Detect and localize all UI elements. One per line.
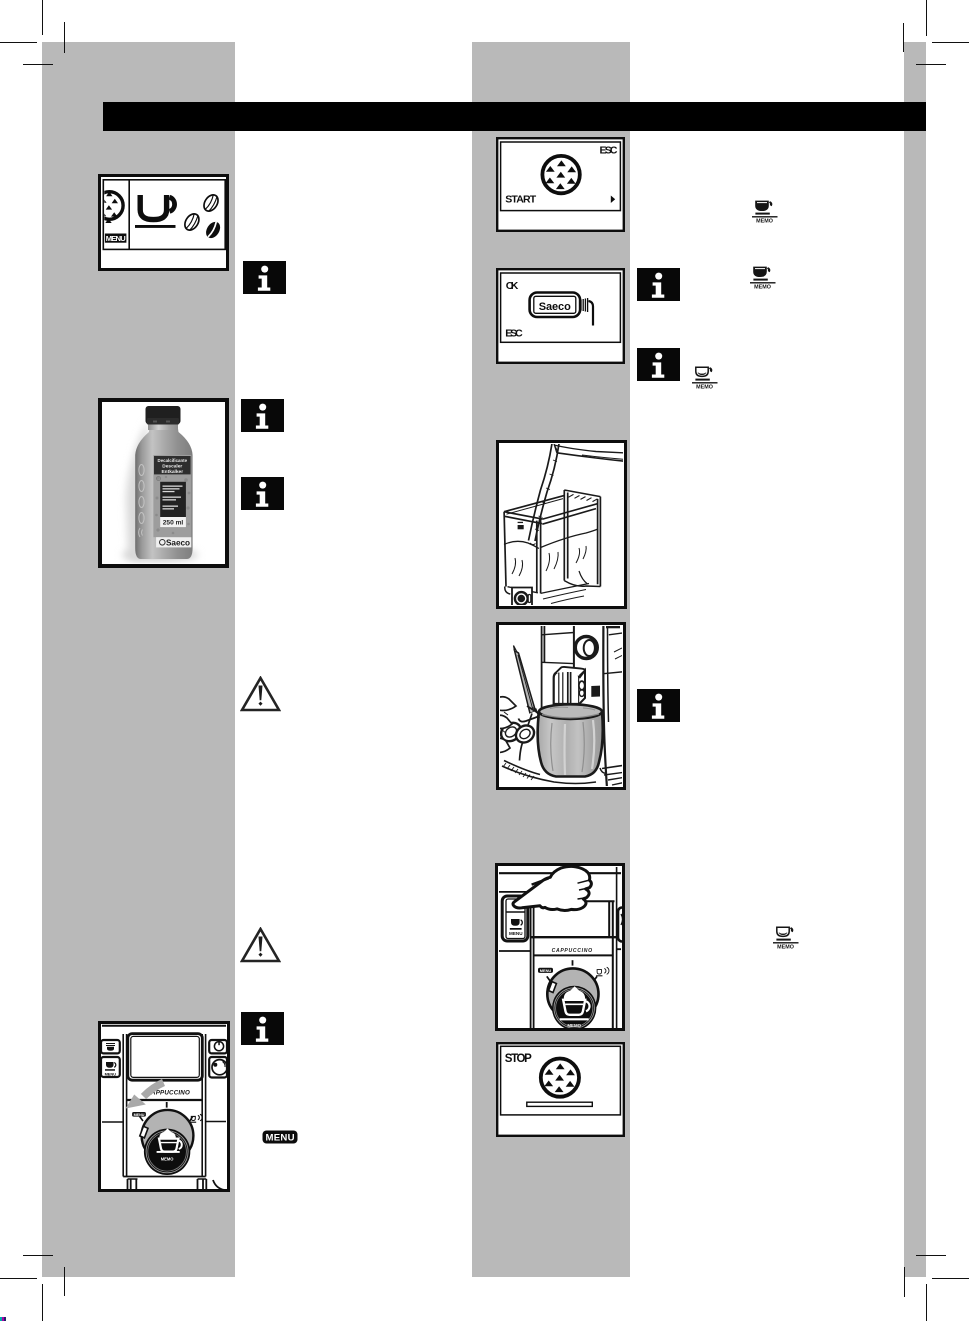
svg-text:STOP: STOP bbox=[505, 1053, 532, 1065]
svg-text:MEMO: MEMO bbox=[696, 385, 713, 390]
svg-text:OK: OK bbox=[506, 280, 519, 292]
svg-text:ESC: ESC bbox=[600, 145, 618, 157]
svg-text:MEMO: MEMO bbox=[756, 219, 773, 224]
svg-text:Entkalker: Entkalker bbox=[161, 469, 183, 475]
svg-text:MEMO: MEMO bbox=[777, 945, 794, 950]
svg-text:MENU: MENU bbox=[266, 1133, 295, 1144]
svg-text:ESC: ESC bbox=[505, 328, 523, 340]
svg-text:MENU: MENU bbox=[509, 931, 523, 936]
svg-text:START: START bbox=[505, 194, 537, 206]
svg-text:CAPPUCCINO: CAPPUCCINO bbox=[552, 948, 593, 954]
svg-text:Descaler: Descaler bbox=[162, 464, 182, 470]
svg-text:MENU: MENU bbox=[134, 1113, 145, 1117]
svg-text:MENU: MENU bbox=[106, 234, 127, 243]
svg-text:MEMO: MEMO bbox=[161, 1157, 175, 1162]
svg-text:250 ml: 250 ml bbox=[163, 520, 184, 527]
svg-text:MEMO: MEMO bbox=[567, 1023, 581, 1028]
svg-text:Decalcificante: Decalcificante bbox=[158, 458, 188, 463]
svg-text:MENU: MENU bbox=[105, 1072, 117, 1077]
svg-text:Saeco: Saeco bbox=[539, 301, 571, 313]
svg-text:MEMO: MEMO bbox=[754, 285, 771, 290]
svg-text:MENU: MENU bbox=[540, 968, 552, 973]
svg-text:Saeco: Saeco bbox=[166, 538, 190, 547]
